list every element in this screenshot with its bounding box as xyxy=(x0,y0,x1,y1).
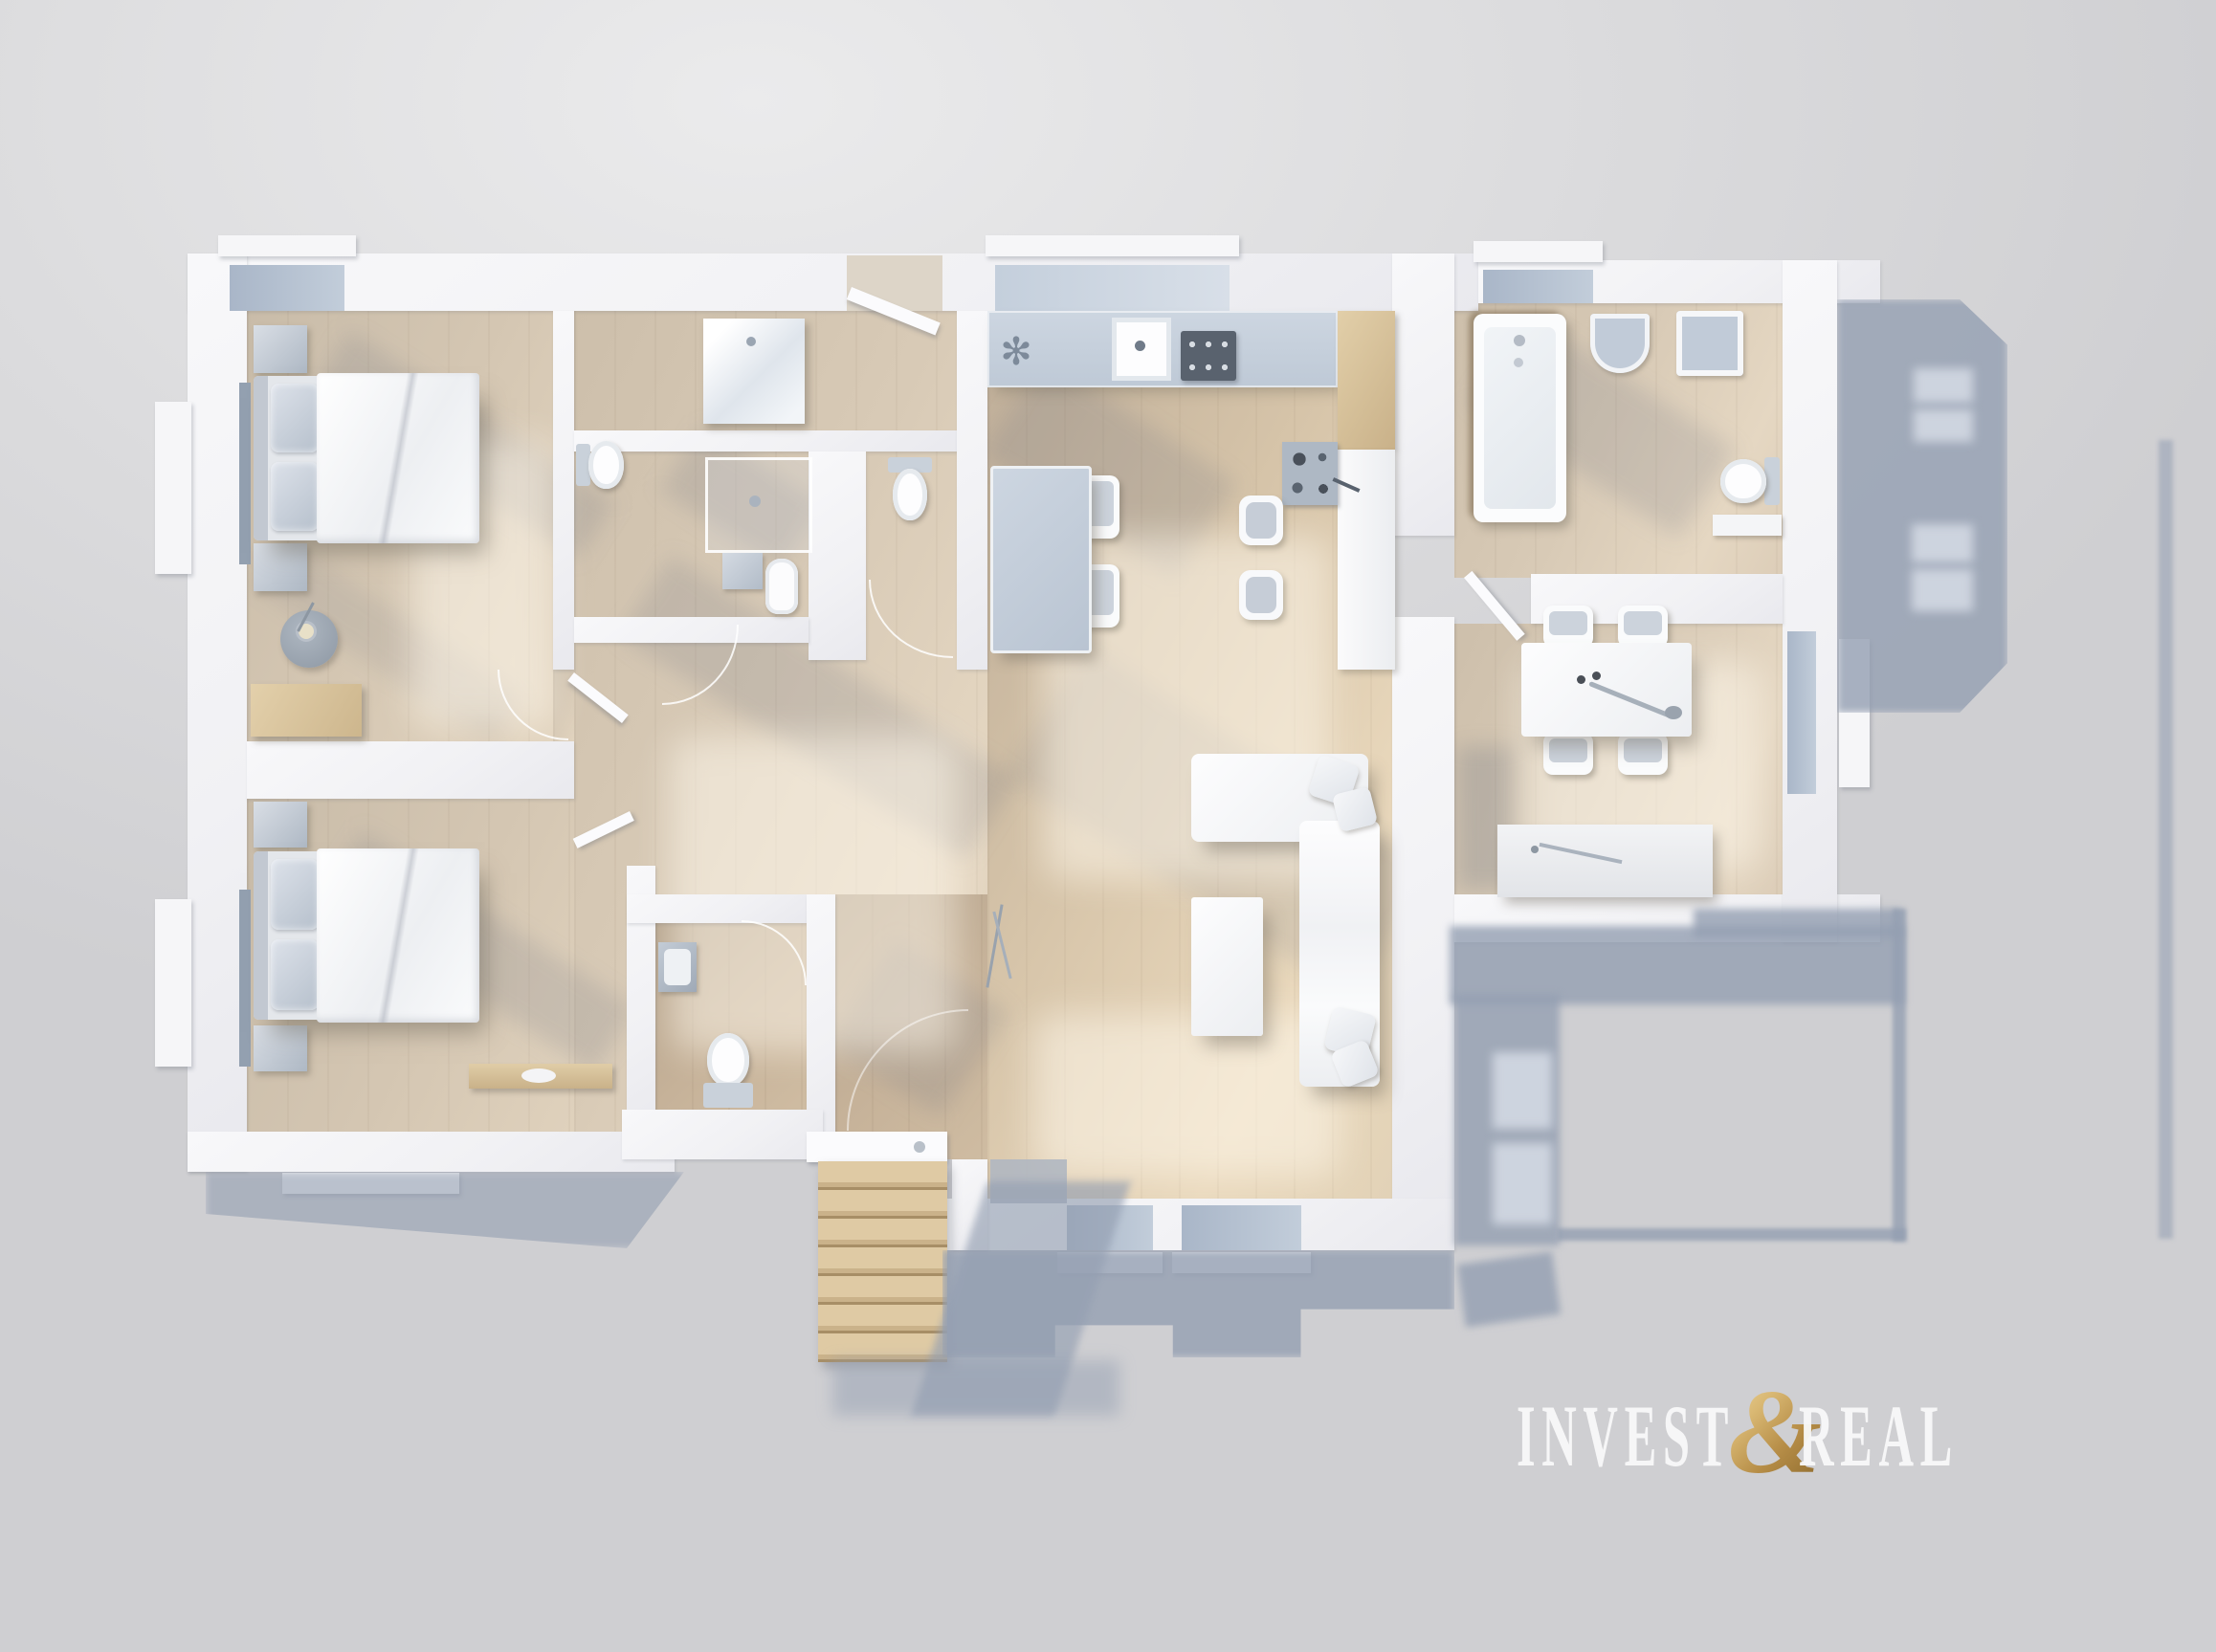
building-shadow-southeast xyxy=(1450,926,1904,1004)
toilet xyxy=(703,1033,753,1108)
nightstand xyxy=(254,325,307,373)
vanity-sink-square xyxy=(1676,311,1743,376)
chair-seat xyxy=(1624,611,1662,635)
vanity-unit xyxy=(703,319,805,424)
shadow-jag xyxy=(1457,1251,1561,1327)
building-shadow-east xyxy=(1837,299,2007,713)
vanity-faucet xyxy=(746,337,756,346)
dining-chair xyxy=(1618,733,1668,775)
sink-faucet xyxy=(1135,341,1145,351)
window-glass xyxy=(995,265,1230,311)
dining-chair xyxy=(1618,606,1668,648)
outer-wall-bottom-left xyxy=(188,1132,675,1172)
sideboard xyxy=(1497,825,1713,897)
window-glass xyxy=(1483,270,1593,303)
outer-wall-top xyxy=(188,253,1478,311)
exterior-stairs xyxy=(818,1161,947,1362)
chair-seat xyxy=(1549,738,1587,762)
toilet-bowl xyxy=(707,1033,749,1087)
duvet xyxy=(317,373,479,543)
stairs-shadow-bottom xyxy=(832,1360,1119,1416)
stool-seat xyxy=(1246,502,1276,539)
dining-chair xyxy=(1543,733,1593,775)
toilet-bowl xyxy=(893,469,927,520)
toilet-tank xyxy=(1764,457,1780,505)
nightstand xyxy=(254,1025,307,1071)
outer-wall-left xyxy=(188,253,247,1172)
watermark-real: REAL xyxy=(1799,1392,1959,1480)
tub-drain xyxy=(1514,358,1523,367)
bedrooms-divider-wall xyxy=(247,741,574,799)
hall-kitchen-wall xyxy=(957,311,987,670)
pillow xyxy=(271,859,319,930)
headboard xyxy=(254,376,268,540)
bath-shelf xyxy=(1713,515,1782,536)
tub-faucet xyxy=(1514,335,1525,346)
bath-cabinet xyxy=(722,553,763,589)
window-glass xyxy=(239,890,251,1067)
pillow xyxy=(271,939,319,1010)
shower-drain xyxy=(749,496,761,507)
bathtub-inner xyxy=(1484,327,1556,509)
nightstand xyxy=(254,802,307,848)
terrace-edge-line xyxy=(1557,1228,1906,1241)
coffee-table xyxy=(1191,897,1263,1036)
hob-symbol-icon: ✻ xyxy=(995,331,1037,373)
living-east-wall-upper xyxy=(1392,253,1454,536)
chair-seat xyxy=(1549,611,1587,635)
window-glass xyxy=(239,383,251,564)
gas-hob xyxy=(1181,331,1236,381)
toilet-bowl xyxy=(588,441,624,489)
bidet xyxy=(765,559,798,614)
double-bed xyxy=(254,851,476,1020)
building-shadow-southeast xyxy=(1694,909,1902,937)
tray-plate xyxy=(521,1068,556,1083)
stool-seat xyxy=(1246,577,1276,613)
toilet xyxy=(1720,457,1780,505)
double-bed xyxy=(254,376,476,540)
window-glass xyxy=(230,265,344,311)
terrace-edge-line xyxy=(1893,909,1906,1242)
table-decor-dot xyxy=(1592,672,1601,680)
round-rug xyxy=(280,610,338,668)
stool xyxy=(1239,496,1283,545)
tall-cabinet-wood xyxy=(1338,311,1395,450)
entry-door xyxy=(807,1132,947,1162)
toilet xyxy=(576,438,624,492)
window-light xyxy=(1914,409,1973,442)
toilet-tank xyxy=(703,1083,753,1108)
right-block-east-wall xyxy=(1783,260,1837,942)
window-glass xyxy=(1182,1205,1301,1250)
sideboard-knob xyxy=(1531,846,1539,853)
window-sill xyxy=(155,402,191,574)
bath-utility-divider-wall xyxy=(574,430,957,452)
spoon-head xyxy=(1665,706,1682,719)
watermark-invest: INVEST xyxy=(1517,1392,1735,1480)
window-light xyxy=(1493,1052,1552,1129)
wall-hung-toilet xyxy=(888,457,932,524)
dining-chair xyxy=(1543,606,1593,648)
nightstand xyxy=(254,543,307,591)
pillow xyxy=(271,384,319,452)
window-sill xyxy=(155,899,191,1067)
window-glass xyxy=(1787,631,1816,794)
dresser-wood xyxy=(251,684,362,737)
hob-with-pan xyxy=(1282,442,1338,505)
sunlight-patch xyxy=(1033,1014,1340,1177)
stool xyxy=(1239,570,1283,620)
wc-north-wall xyxy=(627,894,807,923)
distant-shadow-line xyxy=(2159,440,2173,1239)
window-light xyxy=(1493,1143,1552,1224)
toilet-bowl xyxy=(1720,459,1766,503)
window-sill xyxy=(986,235,1239,256)
window-light xyxy=(1914,368,1973,403)
window-light xyxy=(1912,524,1973,562)
floor-plan-render: ✻ xyxy=(0,0,2216,1652)
bedroom1-east-wall xyxy=(553,311,574,670)
window-sill xyxy=(1474,241,1603,262)
breakfast-table xyxy=(990,466,1092,653)
headboard xyxy=(254,851,268,1020)
sink-bowl xyxy=(664,949,691,985)
entry-door-handle xyxy=(914,1141,925,1153)
window-sill xyxy=(218,235,356,256)
window-light xyxy=(1912,569,1973,611)
building-shadow-southwest xyxy=(206,1172,684,1248)
shower-wc-pier xyxy=(809,452,866,660)
duvet xyxy=(317,848,479,1023)
wall-sink-round xyxy=(1590,314,1650,373)
wc-south-wall xyxy=(622,1110,823,1159)
chair-seat xyxy=(1624,738,1662,762)
table-decor-dot xyxy=(1577,675,1585,684)
pillow xyxy=(271,462,319,531)
living-east-wall-lower xyxy=(1392,617,1454,1199)
